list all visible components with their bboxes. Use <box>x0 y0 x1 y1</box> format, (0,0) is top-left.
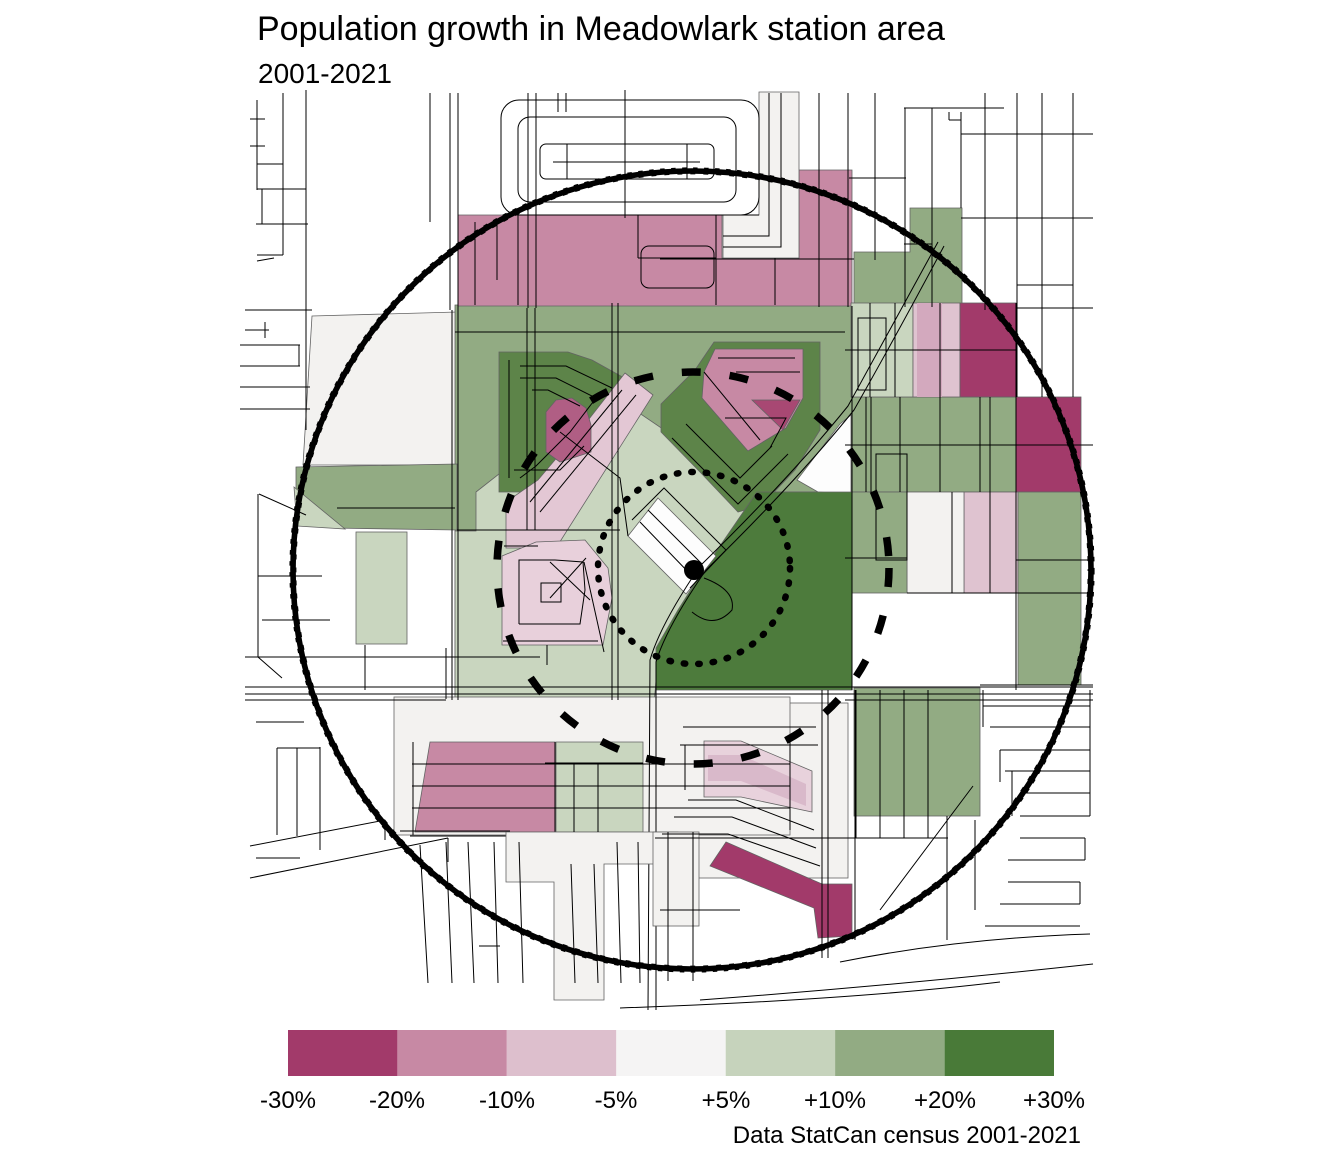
svg-text:-5%: -5% <box>595 1087 638 1114</box>
svg-text:-30%: -30% <box>260 1087 316 1114</box>
svg-text:+20%: +20% <box>914 1087 976 1114</box>
svg-text:Data StatCan census 2001-2021: Data StatCan census 2001-2021 <box>733 1122 1081 1149</box>
svg-text:+10%: +10% <box>804 1087 866 1114</box>
svg-text:-20%: -20% <box>369 1087 425 1114</box>
svg-text:-10%: -10% <box>479 1087 535 1114</box>
svg-text:+5%: +5% <box>702 1087 751 1114</box>
svg-text:+30%: +30% <box>1023 1087 1085 1114</box>
svg-text:Population growth in Meadowlar: Population growth in Meadowlark station … <box>257 10 945 48</box>
svg-text:2001-2021: 2001-2021 <box>258 58 392 89</box>
